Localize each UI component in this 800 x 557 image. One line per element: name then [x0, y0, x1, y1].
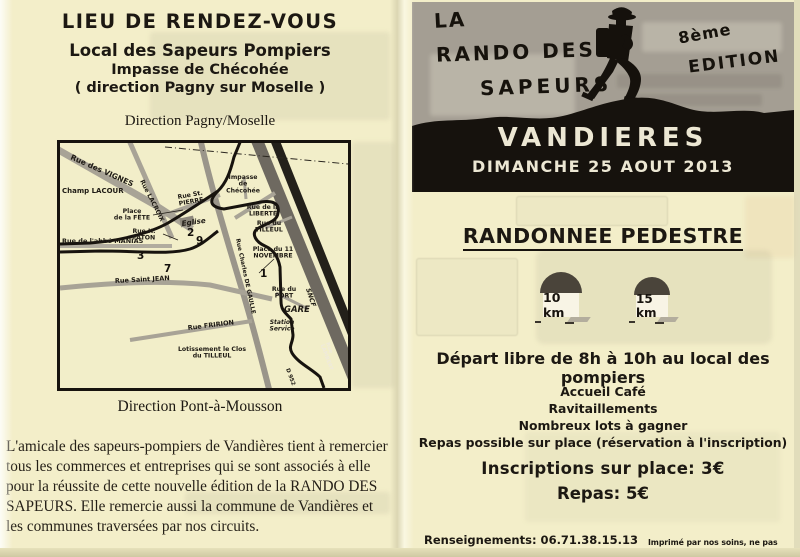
header-title-line1: LA: [433, 7, 466, 33]
milestone-shadow: [655, 322, 664, 324]
bleed-through: [516, 196, 668, 226]
milestone-10km-icon: 10 km: [539, 272, 583, 317]
header-title-line3: SAPEURS: [480, 72, 613, 101]
departure-info: Départ libre de 8h à 10h au local des po…: [412, 349, 794, 387]
map-label: Rue de l'abbé MANIAS: [62, 237, 144, 245]
amenity-item: Repas possible sur place (réservation à …: [412, 435, 794, 450]
map-caption-top: Direction Pagny/Moselle: [0, 113, 400, 130]
map-route-number: 7: [164, 263, 171, 275]
map-label: Rue St.PIERRE: [177, 190, 204, 208]
footer-contact: Renseignements: 06.71.38.15.13: [424, 533, 638, 547]
map-label: Placede la FÊTE: [114, 208, 150, 222]
price-registration: Inscriptions sur place: 3€: [412, 459, 794, 478]
map-route-number: 1: [260, 268, 267, 280]
map-label: Lotissement le Closdu TILLEUL: [178, 346, 246, 360]
scan-edge: [0, 0, 14, 557]
amenities-list: Accueil Café Ravitaillements Nombreux lo…: [412, 384, 794, 453]
page-fold: [390, 0, 414, 557]
section-title-wrap: RANDONNEE PEDESTRE: [412, 224, 794, 251]
section-title: RANDONNEE PEDESTRE: [463, 224, 743, 251]
scan-edge: [794, 0, 800, 557]
venue-direction: ( direction Pagny sur Moselle ): [0, 80, 400, 96]
bleed-through: [352, 142, 394, 388]
map-label: D 952: [284, 368, 296, 387]
map-label: Rue des VIGNES: [69, 153, 135, 189]
map-route-number: 3: [137, 250, 144, 262]
map-label: ImpassedeChécohée: [226, 174, 260, 194]
flyer-header: LA RANDO DES SAPEURS 8ème EDITION VANDIE…: [412, 2, 794, 192]
scan-edge: [0, 548, 800, 557]
map-label: Rue de laLIBERTÉ: [247, 204, 280, 218]
map-label: Rue duTILLEUL: [255, 220, 283, 234]
milestone-distance: 15 km: [636, 295, 668, 317]
milestone-distance: 10 km: [543, 293, 579, 317]
venue-block: Local des Sapeurs Pompiers Impasse de Ch…: [0, 41, 400, 96]
map-label: Place du 11NOVEMBRE: [253, 246, 293, 260]
milestone-shadow: [535, 321, 541, 323]
bleed-through: [416, 258, 518, 336]
venue-street: Impasse de Chécohée: [0, 62, 400, 78]
map-route-number: 9: [196, 235, 203, 247]
map-label: StationService: [270, 319, 295, 332]
scanned-flyer: LIEU DE RENDEZ-VOUS Local des Sapeurs Po…: [0, 0, 800, 557]
map-route-number: 2: [187, 227, 194, 239]
map-svg: Rue des VIGNESChamp LACOURRue LACROIXRue…: [60, 143, 348, 388]
map-label: GARE: [284, 305, 310, 315]
amenity-item: Accueil Café: [412, 384, 794, 399]
map-caption-bottom: Direction Pont-à-Mousson: [0, 398, 400, 416]
acknowledgement-paragraph: L'amicale des sapeurs-pompiers de Vandiè…: [6, 437, 390, 537]
amenity-item: Ravitaillements: [412, 401, 794, 416]
milestone-15km-icon: 15 km: [633, 277, 671, 317]
header-town: VANDIERES: [412, 123, 794, 153]
town-map: Rue des VIGNESChamp LACOURRue LACROIXRue…: [57, 140, 351, 391]
amenity-item: Nombreux lots à gagner: [412, 418, 794, 433]
header-date: DIMANCHE 25 AOUT 2013: [412, 157, 794, 176]
milestone-shadow: [565, 322, 574, 324]
meeting-point-title: LIEU DE RENDEZ-VOUS: [0, 10, 400, 33]
map-label: Rue FRIRION: [187, 318, 234, 332]
venue-name: Local des Sapeurs Pompiers: [0, 41, 400, 60]
milestone-shadow: [629, 321, 635, 323]
price-meal: Repas: 5€: [412, 484, 794, 503]
map-label: Rue duPORT: [272, 286, 296, 300]
map-label: Champ LACOUR: [62, 187, 124, 195]
